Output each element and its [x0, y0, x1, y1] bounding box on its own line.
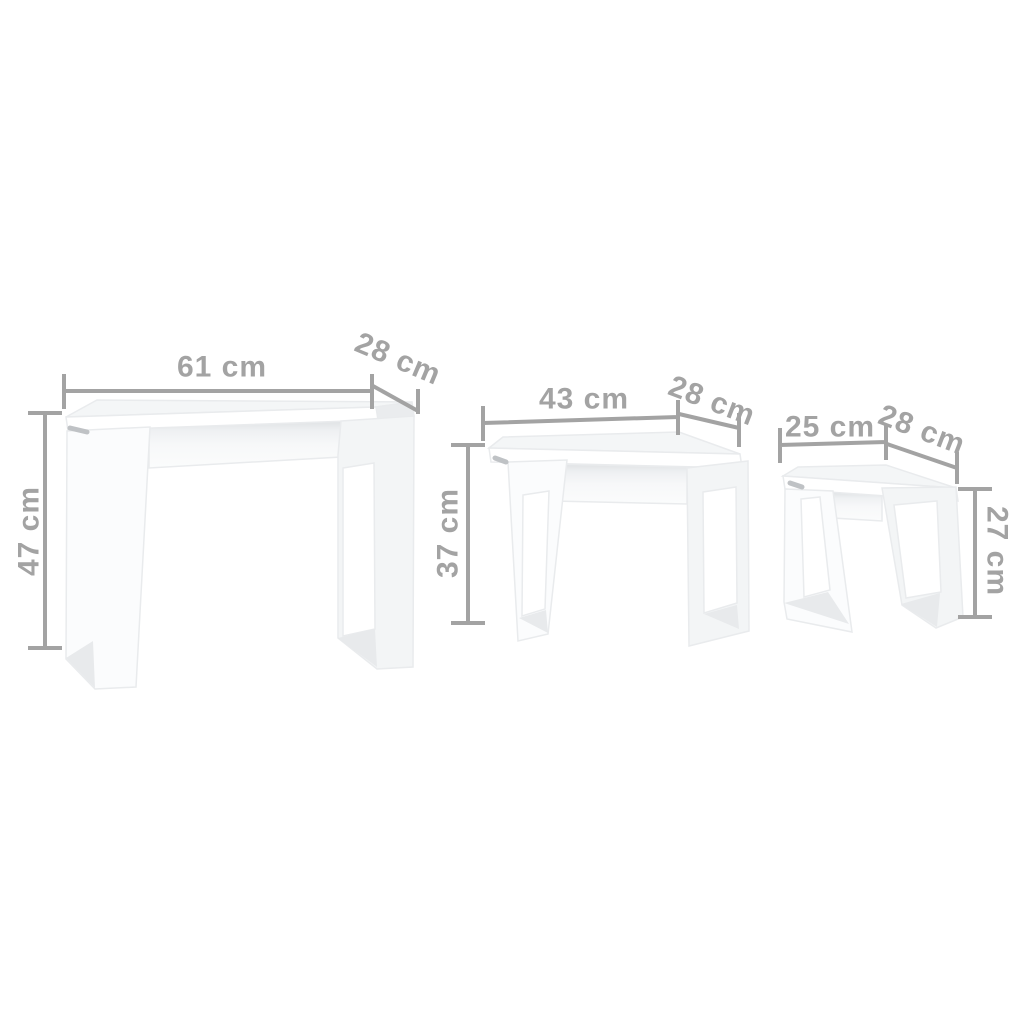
- table-small: [783, 465, 963, 632]
- table-large-apron: [149, 421, 341, 468]
- label-large-depth: 28 cm: [350, 326, 446, 392]
- table-large-left-leg: [66, 427, 150, 689]
- label-small-depth: 28 cm: [874, 398, 970, 461]
- table-medium-right-leg-hole: [703, 487, 737, 613]
- label-small-height: 27 cm: [981, 506, 1014, 596]
- table-large: [66, 400, 414, 689]
- label-large-height: 47 cm: [13, 486, 46, 576]
- nesting-tables-dimension-diagram: 61 cm 28 cm 47 cm 43 cm 28 cm 37 cm 25 c…: [0, 0, 1024, 1024]
- label-large-width: 61 cm: [177, 351, 267, 384]
- table-medium: [489, 432, 749, 646]
- table-medium-left-leg-hole: [522, 491, 549, 616]
- table-small-apron: [833, 492, 882, 521]
- label-small-width: 25 cm: [785, 411, 875, 444]
- table-medium-apron: [553, 464, 687, 504]
- label-medium-width: 43 cm: [539, 383, 629, 416]
- table-large-right-leg-hole: [343, 463, 375, 636]
- label-medium-height: 37 cm: [432, 488, 465, 578]
